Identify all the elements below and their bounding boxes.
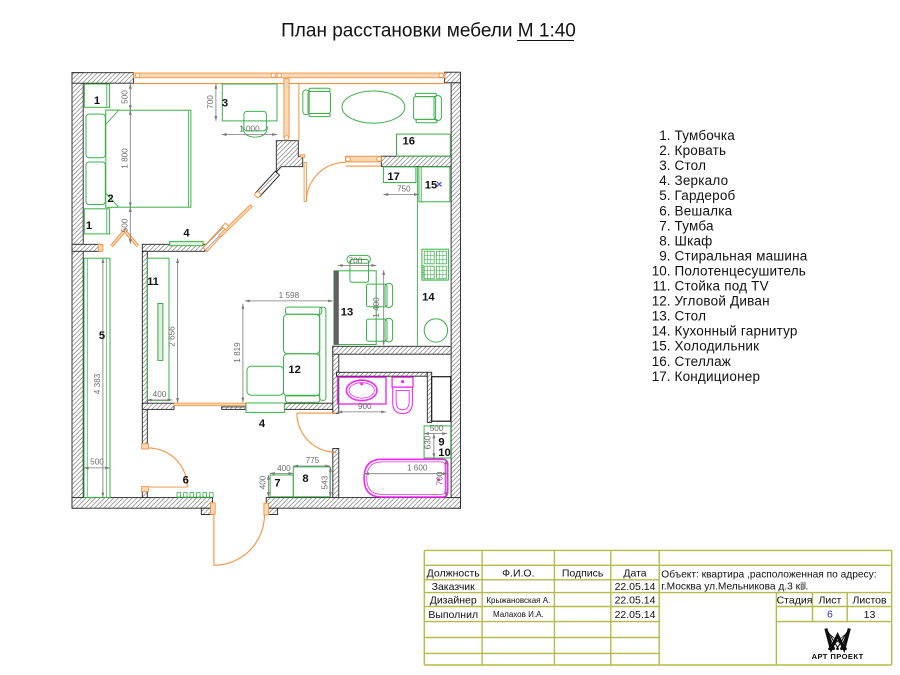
- svg-text:Стеллаж: Стеллаж: [675, 354, 732, 369]
- svg-text:5.: 5.: [659, 188, 670, 203]
- svg-text:4 383: 4 383: [93, 373, 102, 394]
- svg-text:11.: 11.: [653, 279, 671, 294]
- svg-text:16.: 16.: [652, 354, 671, 369]
- svg-text:Кондиционер: Кондиционер: [675, 369, 761, 384]
- svg-text:1 800: 1 800: [120, 148, 129, 169]
- svg-text:9.: 9.: [659, 248, 670, 263]
- svg-text:Дата: Дата: [623, 568, 646, 580]
- svg-text:1: 1: [86, 220, 92, 232]
- svg-text:1 400: 1 400: [372, 297, 381, 318]
- svg-text:Лист: Лист: [818, 595, 841, 607]
- svg-text:15.: 15.: [652, 339, 671, 354]
- svg-text:Шкаф: Шкаф: [675, 233, 713, 248]
- svg-text:13: 13: [341, 307, 353, 319]
- svg-text:12: 12: [288, 364, 300, 376]
- svg-text:4: 4: [183, 228, 190, 240]
- svg-text:1 598: 1 598: [279, 291, 300, 300]
- svg-text:6: 6: [827, 609, 833, 621]
- svg-text:Стадия: Стадия: [777, 595, 813, 607]
- svg-text:Листов: Листов: [852, 595, 887, 607]
- svg-text:15: 15: [425, 180, 437, 192]
- svg-text:500: 500: [430, 424, 444, 433]
- svg-text:3.: 3.: [659, 158, 670, 173]
- svg-text:7: 7: [274, 478, 280, 490]
- svg-text:Кровать: Кровать: [675, 143, 727, 158]
- svg-text:6.: 6.: [659, 203, 670, 218]
- svg-text:11: 11: [147, 276, 159, 288]
- svg-text:Кухонный гарнитур: Кухонный гарнитур: [675, 324, 798, 339]
- svg-text:Холодильник: Холодильник: [675, 339, 760, 354]
- svg-text:План расстановки мебели М 1:40: План расстановки мебели М 1:40: [281, 21, 576, 42]
- svg-text:3: 3: [222, 98, 228, 110]
- svg-text:г.Москва ул.Мельникова д.3 кв.: г.Москва ул.Мельникова д.3 кв.: [661, 582, 808, 593]
- svg-text:Угловой Диван: Угловой Диван: [675, 294, 770, 309]
- svg-text:14.: 14.: [652, 324, 671, 339]
- svg-text:Стойка под TV: Стойка под TV: [675, 279, 769, 294]
- svg-text:500: 500: [90, 458, 104, 467]
- svg-text:Тумбочка: Тумбочка: [675, 128, 736, 143]
- svg-text:5: 5: [99, 330, 105, 342]
- svg-text:700: 700: [435, 471, 444, 485]
- svg-text:Полотенцесушитель: Полотенцесушитель: [675, 264, 807, 279]
- svg-text:14: 14: [422, 292, 435, 304]
- svg-text:1 000: 1 000: [239, 125, 260, 134]
- svg-text:700: 700: [206, 95, 215, 109]
- svg-text:Подпись: Подпись: [562, 568, 604, 580]
- svg-text:Крыжановская А.: Крыжановская А.: [486, 596, 550, 605]
- svg-text:6: 6: [183, 475, 189, 487]
- svg-text:2.: 2.: [659, 143, 670, 158]
- svg-text:22.05.14: 22.05.14: [615, 581, 656, 593]
- svg-text:700: 700: [349, 256, 363, 265]
- svg-text:Выполнил: Выполнил: [428, 609, 478, 621]
- svg-text:22.05.14: 22.05.14: [615, 609, 656, 621]
- svg-text:500: 500: [120, 90, 129, 104]
- svg-text:2: 2: [107, 193, 113, 205]
- svg-text:10.: 10.: [652, 264, 671, 279]
- svg-text:4.: 4.: [659, 173, 670, 188]
- svg-text:Стол: Стол: [675, 309, 707, 324]
- svg-text:13.: 13.: [652, 309, 671, 324]
- svg-text:Гардероб: Гардероб: [675, 188, 736, 203]
- svg-text:543: 543: [320, 475, 329, 489]
- svg-text:1 819: 1 819: [233, 342, 242, 363]
- svg-text:17: 17: [387, 171, 399, 183]
- svg-text:Должность: Должность: [427, 568, 481, 580]
- svg-text:Дизайнер: Дизайнер: [430, 594, 477, 606]
- svg-text:Вешалка: Вешалка: [675, 203, 733, 218]
- svg-text:17.: 17.: [652, 369, 671, 384]
- svg-text:Малахов И.А.: Малахов И.А.: [493, 610, 544, 619]
- svg-text:750: 750: [397, 185, 411, 194]
- svg-text:8: 8: [302, 473, 308, 485]
- svg-text:Ф.И.О.: Ф.И.О.: [502, 568, 534, 580]
- svg-text:1 600: 1 600: [407, 464, 428, 473]
- svg-text:12.: 12.: [652, 294, 671, 309]
- svg-text:500: 500: [120, 218, 129, 232]
- svg-text:Стол: Стол: [675, 158, 707, 173]
- svg-text:775: 775: [306, 456, 320, 465]
- svg-text:Зеркало: Зеркало: [675, 173, 729, 188]
- svg-text:7.: 7.: [659, 218, 670, 233]
- svg-text:900: 900: [358, 402, 372, 411]
- svg-text:400: 400: [277, 464, 291, 473]
- svg-text:2 656: 2 656: [168, 326, 177, 347]
- svg-text:АРТ ПРОЕКТ: АРТ ПРОЕКТ: [812, 652, 864, 661]
- svg-text:Стиральная машина: Стиральная машина: [675, 248, 808, 263]
- svg-text:22.05.14: 22.05.14: [615, 594, 656, 606]
- svg-text:8.: 8.: [659, 233, 670, 248]
- svg-text:400: 400: [153, 390, 167, 399]
- svg-text:Тумба: Тумба: [675, 218, 714, 233]
- svg-text:630: 630: [423, 435, 432, 449]
- svg-text:Заказчик: Заказчик: [432, 581, 476, 593]
- svg-text:Объект: квартира ,расположенна: Объект: квартира ,расположенная по адрес…: [661, 569, 876, 581]
- svg-text:13: 13: [864, 609, 876, 621]
- svg-text:10: 10: [438, 447, 450, 459]
- svg-text:1.: 1.: [659, 128, 670, 143]
- svg-text:400: 400: [258, 475, 267, 489]
- svg-text:1: 1: [94, 95, 100, 107]
- svg-text:16: 16: [402, 136, 414, 148]
- svg-text:4: 4: [259, 418, 266, 430]
